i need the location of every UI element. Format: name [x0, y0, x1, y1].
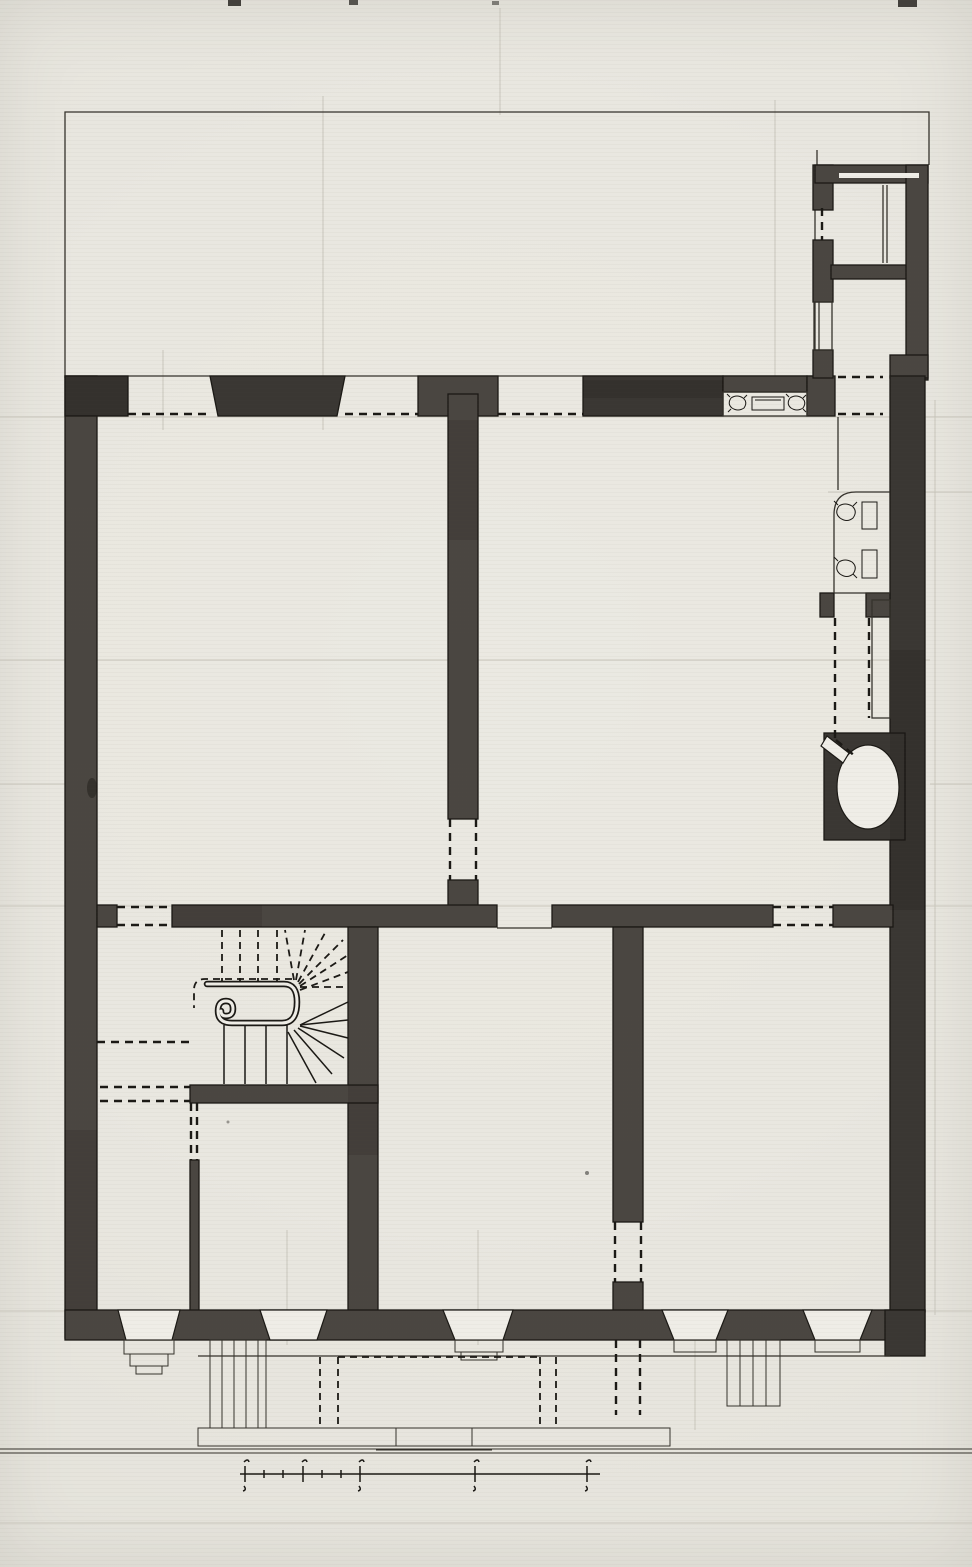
wall-top-pier-4 [807, 376, 835, 416]
wall-cross-3 [552, 905, 773, 927]
ink-blot [87, 778, 97, 798]
wing-wall-left-c [813, 350, 833, 378]
alcove-stub-right [866, 593, 890, 617]
wing-wall-right [906, 165, 928, 380]
wall-lower-right-partition [613, 927, 643, 1222]
wall-middle-vertical-foot [448, 880, 478, 907]
window-lower-3 [443, 1310, 513, 1340]
wing-wall-left-b [813, 240, 833, 302]
window-lower-2 [260, 1310, 327, 1340]
wall-top-pier-1 [210, 376, 345, 416]
wing-partition [831, 265, 908, 279]
wall-bottom-right-block [885, 1310, 925, 1356]
edge-mark [492, 1, 499, 5]
edge-mark [228, 0, 241, 6]
window-lower-5 [803, 1310, 872, 1340]
wall-niche-strip [723, 376, 807, 392]
wall-lower-right-partition-stub [613, 1282, 643, 1312]
window-lower-4 [662, 1310, 728, 1340]
wall-lower-left-partition [190, 1160, 199, 1312]
paper-speck [585, 1171, 589, 1175]
floor-plan-svg [0, 0, 972, 1567]
wall-cross-1 [97, 905, 117, 927]
window-lower-1 [118, 1310, 180, 1340]
wall-cross-4 [833, 905, 893, 927]
edge-mark [349, 0, 358, 5]
alcove-stub-left [820, 593, 834, 617]
edge-mark [898, 0, 917, 7]
paper-speck [227, 1121, 230, 1124]
scanned-floor-plan [0, 0, 972, 1567]
wall-right-corner-block [890, 355, 928, 378]
wing-lintel-slit [839, 173, 919, 178]
